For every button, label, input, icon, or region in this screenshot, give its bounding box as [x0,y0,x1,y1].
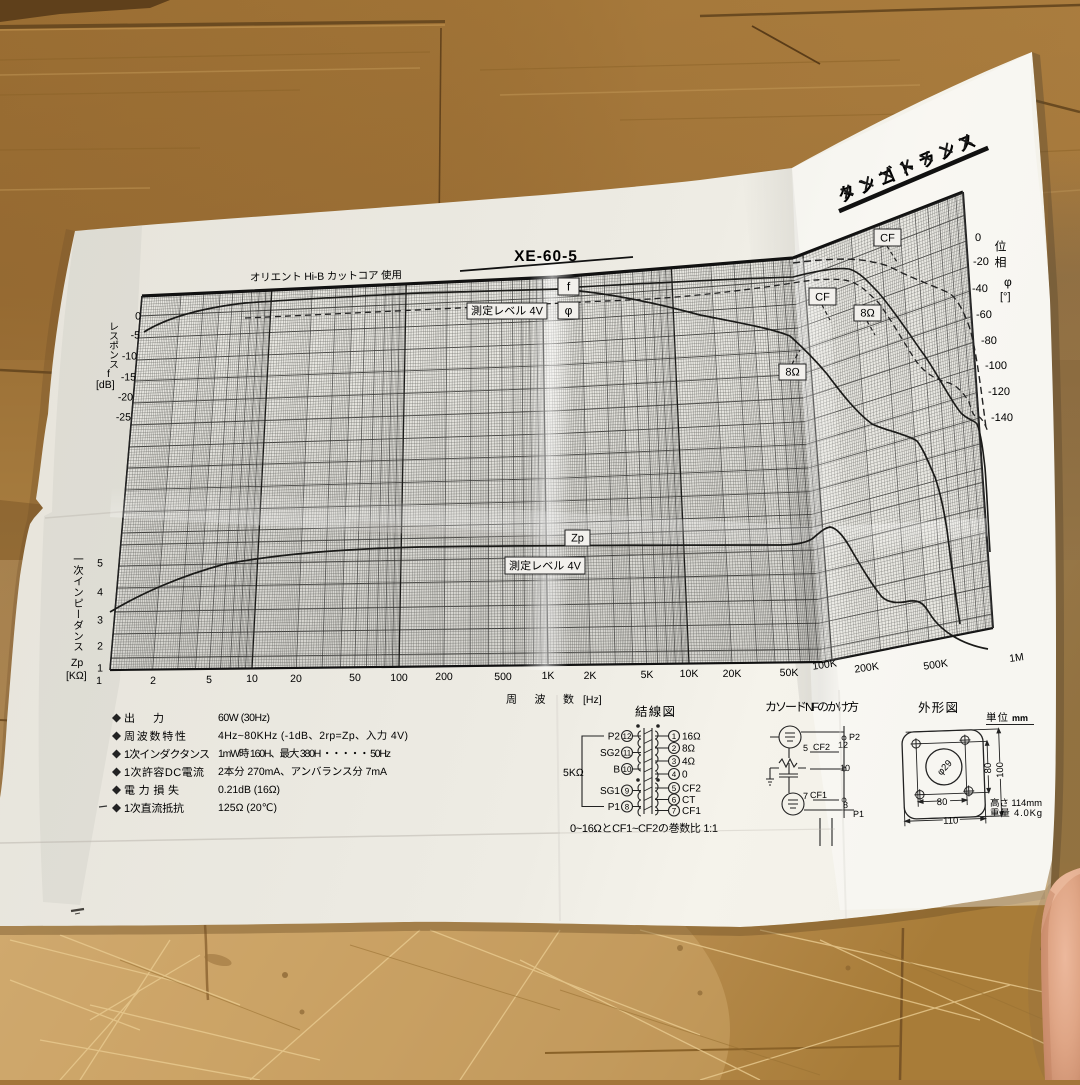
svg-text:CF1: CF1 [682,806,701,817]
svg-text:11: 11 [623,748,632,757]
svg-text:レスポンス: レスポンス [107,321,119,369]
svg-text:φ: φ [565,304,573,318]
svg-text:-40: -40 [972,283,988,295]
svg-text:9: 9 [625,786,630,795]
svg-text:結線図: 結線図 [635,705,675,719]
svg-text:P1: P1 [853,809,864,819]
svg-text:1K: 1K [542,670,555,682]
svg-text:出 力: 出 力 [124,712,164,725]
svg-text:1次インダクタンス: 1次インダクタンス [124,748,210,761]
svg-text:80: 80 [937,797,948,808]
svg-text:1: 1 [672,732,677,741]
svg-text:3: 3 [672,757,677,766]
svg-text:測定レベル 4V: 測定レベル 4V [471,305,544,318]
svg-text:カソードNFのかけ方: カソードNFのかけ方 [765,700,859,714]
svg-text:一次インピーダンス: 一次インピーダンス [72,554,84,652]
svg-text:100: 100 [995,762,1007,778]
svg-text:CF: CF [880,233,895,245]
svg-text:1: 1 [96,675,102,687]
svg-text:周波数特性: 周波数特性 [124,730,186,743]
svg-text:-60: -60 [976,309,992,321]
svg-text:0: 0 [135,311,141,323]
svg-text:4: 4 [672,770,677,779]
svg-text:4: 4 [97,587,103,599]
svg-text:単位: 単位 [986,712,1009,724]
svg-text:5: 5 [206,674,212,686]
svg-text:4Hz~80KHz (-1dB、2rp=Zp、入力 4V): 4Hz~80KHz (-1dB、2rp=Zp、入力 4V) [218,730,408,742]
svg-text:8: 8 [625,802,630,811]
svg-text:3: 3 [97,615,103,627]
svg-text:-80: -80 [981,335,997,347]
svg-text:1次直流抵抗: 1次直流抵抗 [124,802,184,815]
svg-text:20K: 20K [723,668,742,680]
svg-text:10: 10 [623,765,632,774]
svg-text:CF1: CF1 [810,790,827,800]
svg-text:SG2: SG2 [600,748,620,759]
svg-text:[°]: [°] [1000,291,1011,303]
svg-text:-140: -140 [991,412,1013,424]
svg-text:CF2: CF2 [682,784,701,795]
svg-text:1mW時 160H、最大 380H ・・・・・ 50Hz: 1mW時 160H、最大 380H ・・・・・ 50Hz [218,748,391,760]
svg-text:80: 80 [983,763,994,774]
svg-text:12: 12 [838,740,848,750]
svg-text:1M: 1M [1009,651,1025,665]
svg-text:-10: -10 [122,351,137,363]
svg-text:6: 6 [672,795,677,804]
svg-text:CF2: CF2 [813,742,830,752]
svg-text:8Ω: 8Ω [785,367,799,379]
svg-text:CF: CF [815,292,830,304]
svg-text:CT: CT [682,795,695,806]
svg-text:周 波 数: 周 波 数 [506,693,574,706]
svg-text:5K: 5K [641,669,654,681]
svg-text:2: 2 [150,675,156,687]
svg-text:50: 50 [349,672,361,684]
svg-text:測定レベル 4V: 測定レベル 4V [509,560,582,573]
svg-text:0: 0 [682,770,688,781]
svg-text:外形図: 外形図 [918,701,958,715]
svg-text:P1: P1 [608,802,621,813]
svg-text:125Ω (20℃): 125Ω (20℃) [218,802,277,814]
svg-text:10K: 10K [680,668,699,680]
svg-text:重量 4.0Kg: 重量 4.0Kg [990,808,1042,819]
svg-text:7: 7 [672,806,677,815]
svg-text:[KΩ]: [KΩ] [66,670,87,682]
svg-text:8Ω: 8Ω [860,308,874,320]
svg-text:-120: -120 [988,386,1010,398]
svg-text:0: 0 [975,232,981,244]
svg-text:20: 20 [290,673,302,685]
svg-text:Zp: Zp [71,657,83,669]
svg-text:110: 110 [943,815,959,827]
svg-text:2: 2 [97,641,103,653]
svg-text:-5: -5 [131,330,140,342]
svg-text:-20: -20 [118,392,133,404]
svg-text:-100: -100 [985,360,1007,372]
svg-text:-15: -15 [121,372,136,384]
svg-text:60W (30Hz): 60W (30Hz) [218,712,270,724]
svg-text:5KΩ: 5KΩ [563,767,584,779]
svg-text:2本分 270mA、アンバランス分 7mA: 2本分 270mA、アンバランス分 7mA [218,766,387,778]
svg-text:[Hz]: [Hz] [583,694,602,706]
svg-text:100: 100 [390,672,408,684]
svg-text:16Ω: 16Ω [682,732,701,743]
svg-text:5: 5 [97,558,103,570]
svg-text:φ: φ [1004,275,1012,289]
svg-text:-25: -25 [116,412,131,424]
svg-text:5: 5 [803,743,808,753]
svg-text:1: 1 [97,663,103,675]
svg-text:-20: -20 [973,256,989,268]
svg-text:Zp: Zp [571,533,584,545]
svg-text:0.21dB (16Ω): 0.21dB (16Ω) [218,784,280,796]
svg-text:12: 12 [623,732,632,741]
svg-text:[dB]: [dB] [96,379,115,391]
svg-text:電 力 損 失: 電 力 損 失 [124,784,179,797]
svg-text:4Ω: 4Ω [682,757,696,768]
svg-text:10: 10 [246,673,258,685]
svg-text:SG1: SG1 [600,786,620,797]
svg-text:8Ω: 8Ω [682,744,696,755]
svg-text:B: B [613,765,620,776]
svg-text:mm: mm [1012,713,1028,723]
svg-text:7: 7 [803,791,808,801]
svg-text:50K: 50K [780,667,799,679]
svg-text:2K: 2K [584,670,597,682]
svg-text:P2: P2 [849,732,860,742]
svg-text:1次許容DC電流: 1次許容DC電流 [124,766,204,779]
svg-text:500: 500 [494,671,512,683]
svg-text:5: 5 [672,784,677,793]
svg-text:P2: P2 [608,732,621,743]
svg-text:2: 2 [672,744,677,753]
svg-text:200: 200 [435,671,453,683]
